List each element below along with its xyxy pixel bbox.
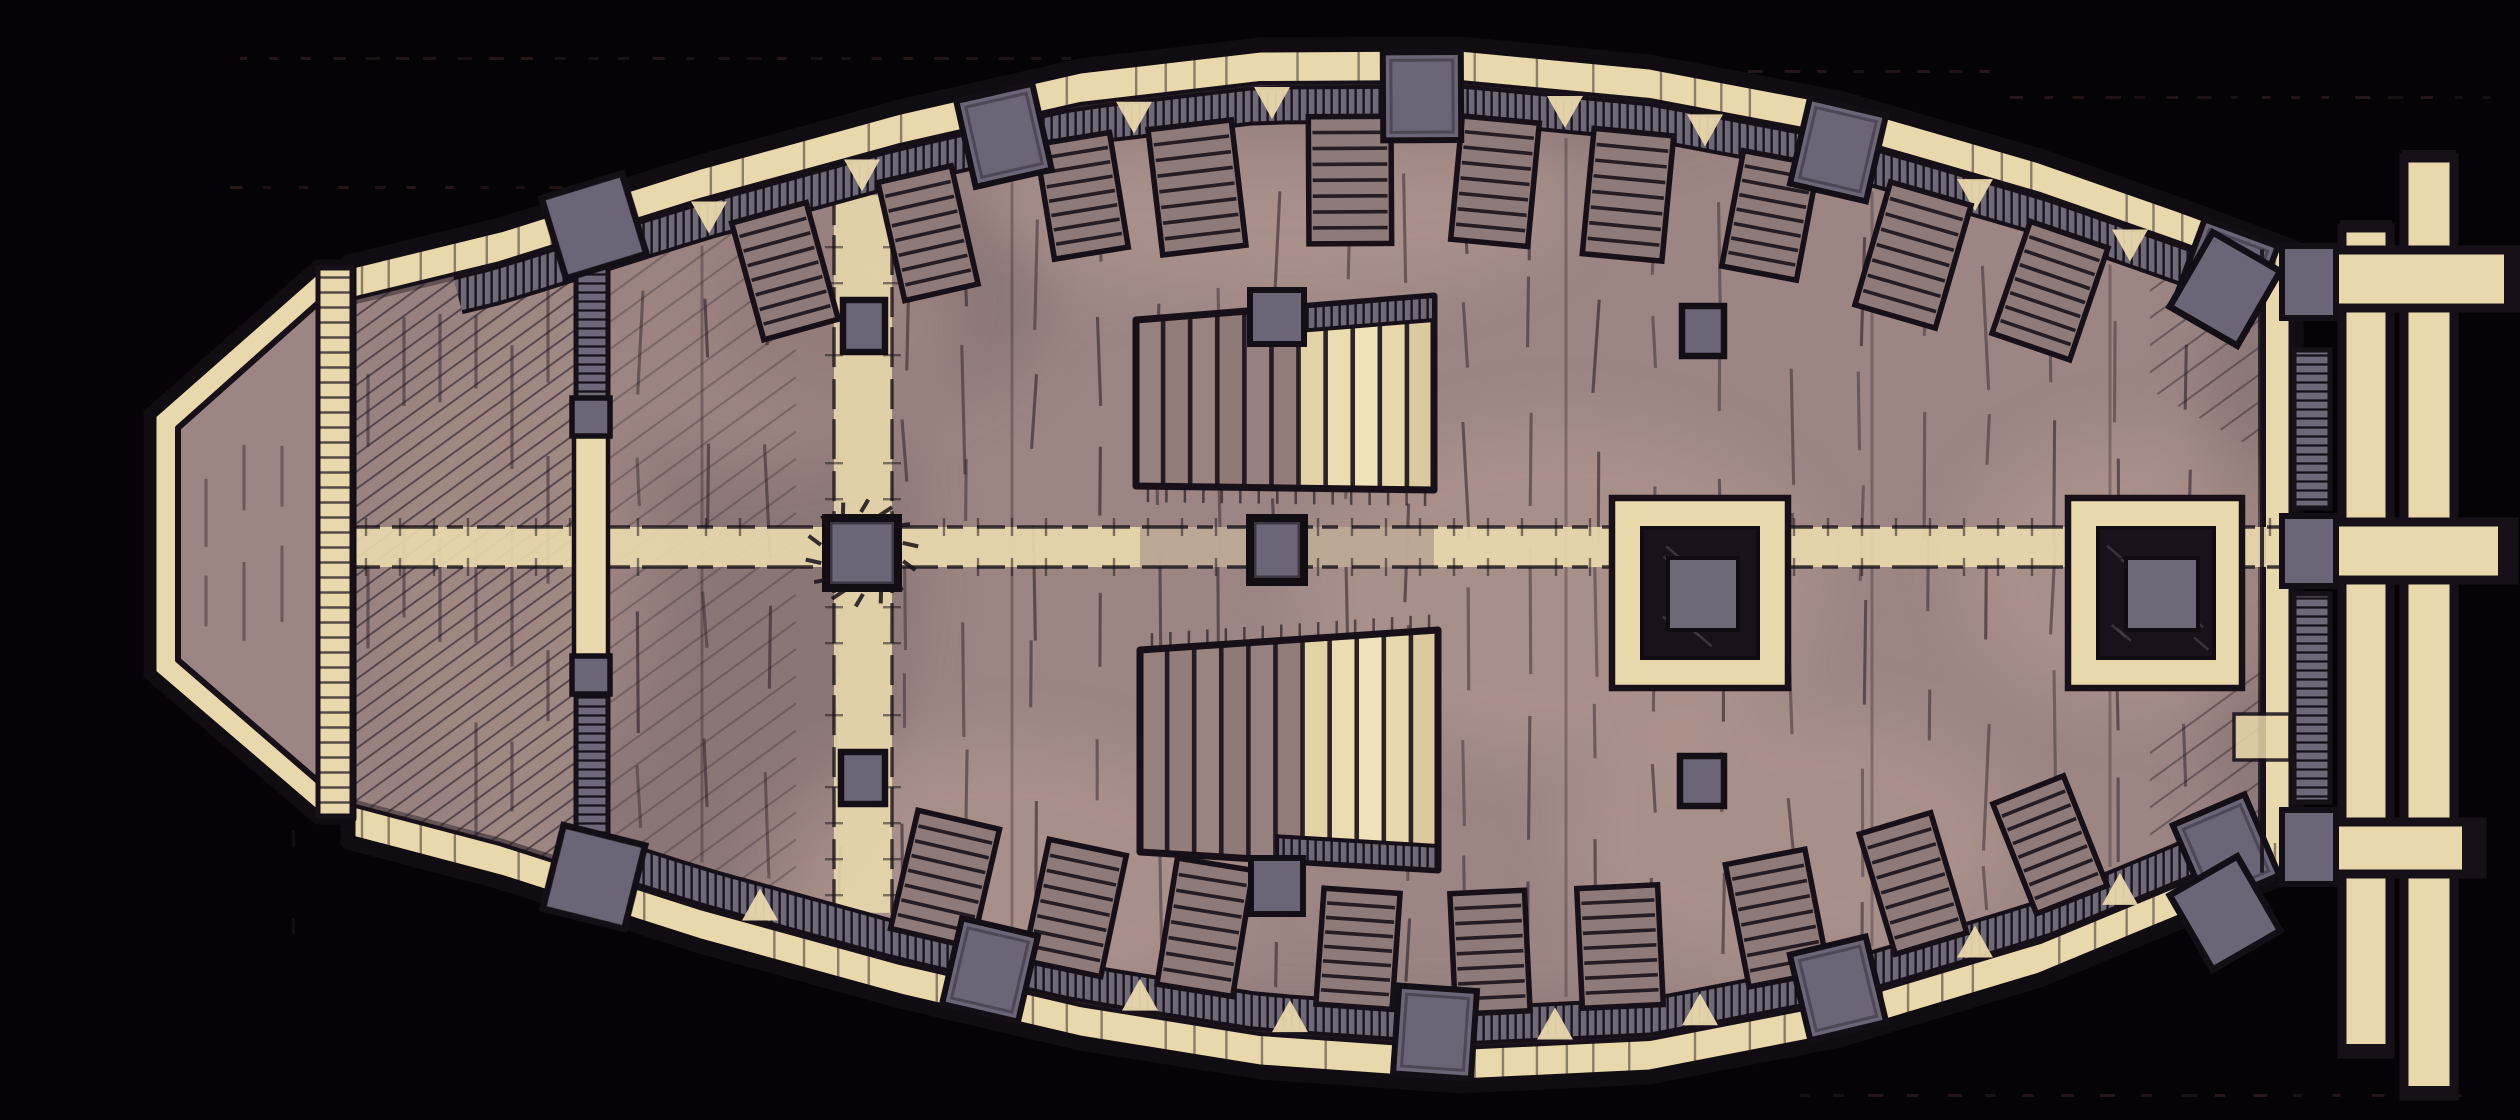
mainmast xyxy=(1250,518,1304,582)
deck-grating xyxy=(1577,885,1663,1008)
bulkhead-ladder xyxy=(576,262,608,400)
rudder-ladder xyxy=(2294,350,2330,508)
beam-end-cap xyxy=(2504,246,2520,312)
deck-grating xyxy=(1582,128,1673,261)
gun-block xyxy=(1790,98,1886,201)
mooring-post xyxy=(1680,756,1724,806)
ship-deck-map xyxy=(0,0,2520,1120)
stair-post xyxy=(1250,290,1304,344)
center-walkway xyxy=(352,518,2292,576)
bulkhead-walk xyxy=(574,436,608,656)
stair-post xyxy=(1251,858,1303,914)
cargo-hatch-right xyxy=(2068,498,2242,688)
deck-grating xyxy=(1308,116,1391,244)
stern-bench xyxy=(2234,714,2290,760)
beam-end-cap xyxy=(2340,220,2392,232)
deck-grating xyxy=(1316,888,1400,1009)
bulkhead-corner-block xyxy=(543,825,645,929)
mooring-post xyxy=(1682,306,1724,356)
cargo-hatch-left xyxy=(1612,498,1788,688)
bulkhead-ladder xyxy=(576,694,608,836)
beam-end-cap xyxy=(2402,150,2456,162)
stern-beam-vertical xyxy=(2342,228,2390,1054)
bow-bulkhead-ladder xyxy=(318,268,352,816)
mooring-post xyxy=(843,300,885,352)
beam-end-cap xyxy=(2462,818,2480,878)
gun-block xyxy=(942,918,1038,1021)
transom-junction-block xyxy=(2282,516,2336,586)
bulkhead-post xyxy=(572,398,610,436)
gun-block xyxy=(1383,52,1461,140)
beam-end-cap xyxy=(2402,1086,2456,1098)
bow-platform xyxy=(150,266,352,818)
mooring-post xyxy=(841,752,885,804)
ship-deck-map-canvas xyxy=(0,0,2520,1120)
transom-junction-block xyxy=(2282,246,2336,318)
foremast xyxy=(806,500,918,607)
deck-grating xyxy=(1148,120,1246,255)
deck-grating xyxy=(1157,858,1253,996)
gun-block xyxy=(956,84,1052,187)
companionway-upper xyxy=(1136,290,1434,506)
gun-block xyxy=(1393,986,1477,1079)
beam-end-cap xyxy=(2340,1044,2392,1056)
beam-end-cap xyxy=(2498,518,2516,584)
bulkhead-post xyxy=(572,656,610,694)
rudder-ladder xyxy=(2294,594,2330,802)
transom-junction-block xyxy=(2282,810,2336,884)
gun-block xyxy=(1790,937,1886,1041)
